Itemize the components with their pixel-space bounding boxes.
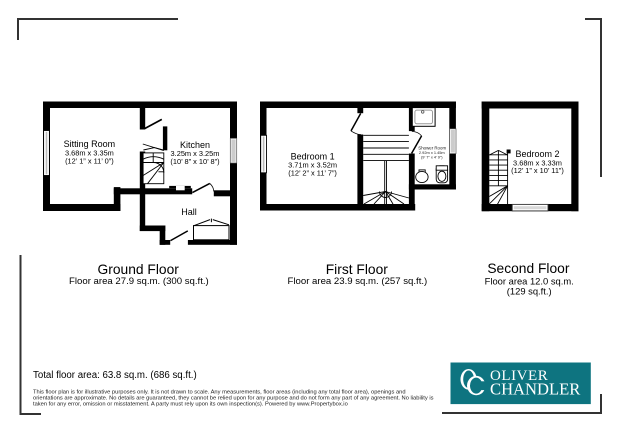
svg-text:Floor area 27.9 sq.m. (300 sq.: Floor area 27.9 sq.m. (300 sq.ft.) — [69, 276, 209, 287]
svg-text:Total floor area: 63.8 sq.m. (: Total floor area: 63.8 sq.m. (686 sq.ft.… — [33, 370, 197, 381]
svg-text:First Floor: First Floor — [326, 262, 388, 277]
svg-text:(12’ 2” x 11’ 7”): (12’ 2” x 11’ 7”) — [288, 169, 337, 178]
svg-text:Second Floor: Second Floor — [487, 261, 569, 276]
svg-text:Floor area 23.9 sq.m. (257 sq.: Floor area 23.9 sq.m. (257 sq.ft.) — [288, 276, 428, 287]
svg-text:Ground Floor: Ground Floor — [98, 262, 180, 277]
svg-text:(129 sq.ft.): (129 sq.ft.) — [507, 286, 552, 297]
svg-text:Hall: Hall — [181, 207, 197, 217]
svg-text:CHANDLER: CHANDLER — [490, 379, 581, 398]
svg-text:(12’ 1” x 11’ 0”): (12’ 1” x 11’ 0”) — [65, 157, 114, 166]
svg-text:(9’ 7” x 4’ 9”): (9’ 7” x 4’ 9”) — [421, 155, 443, 160]
svg-text:(10’ 8” x 10’ 8”): (10’ 8” x 10’ 8”) — [170, 157, 219, 166]
svg-text:taken for any error, omission: taken for any error, omission or misstat… — [33, 401, 348, 407]
svg-text:(12’ 1” x 10’ 11”): (12’ 1” x 10’ 11”) — [511, 166, 564, 175]
